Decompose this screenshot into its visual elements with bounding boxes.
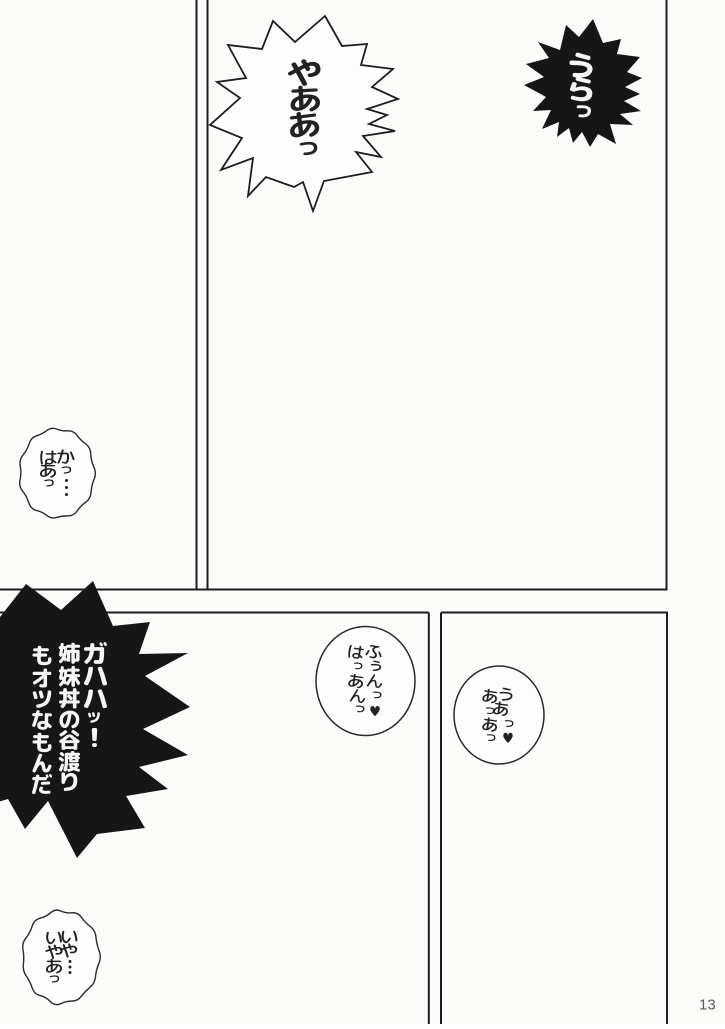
svg-text:13: 13 (699, 997, 716, 1014)
